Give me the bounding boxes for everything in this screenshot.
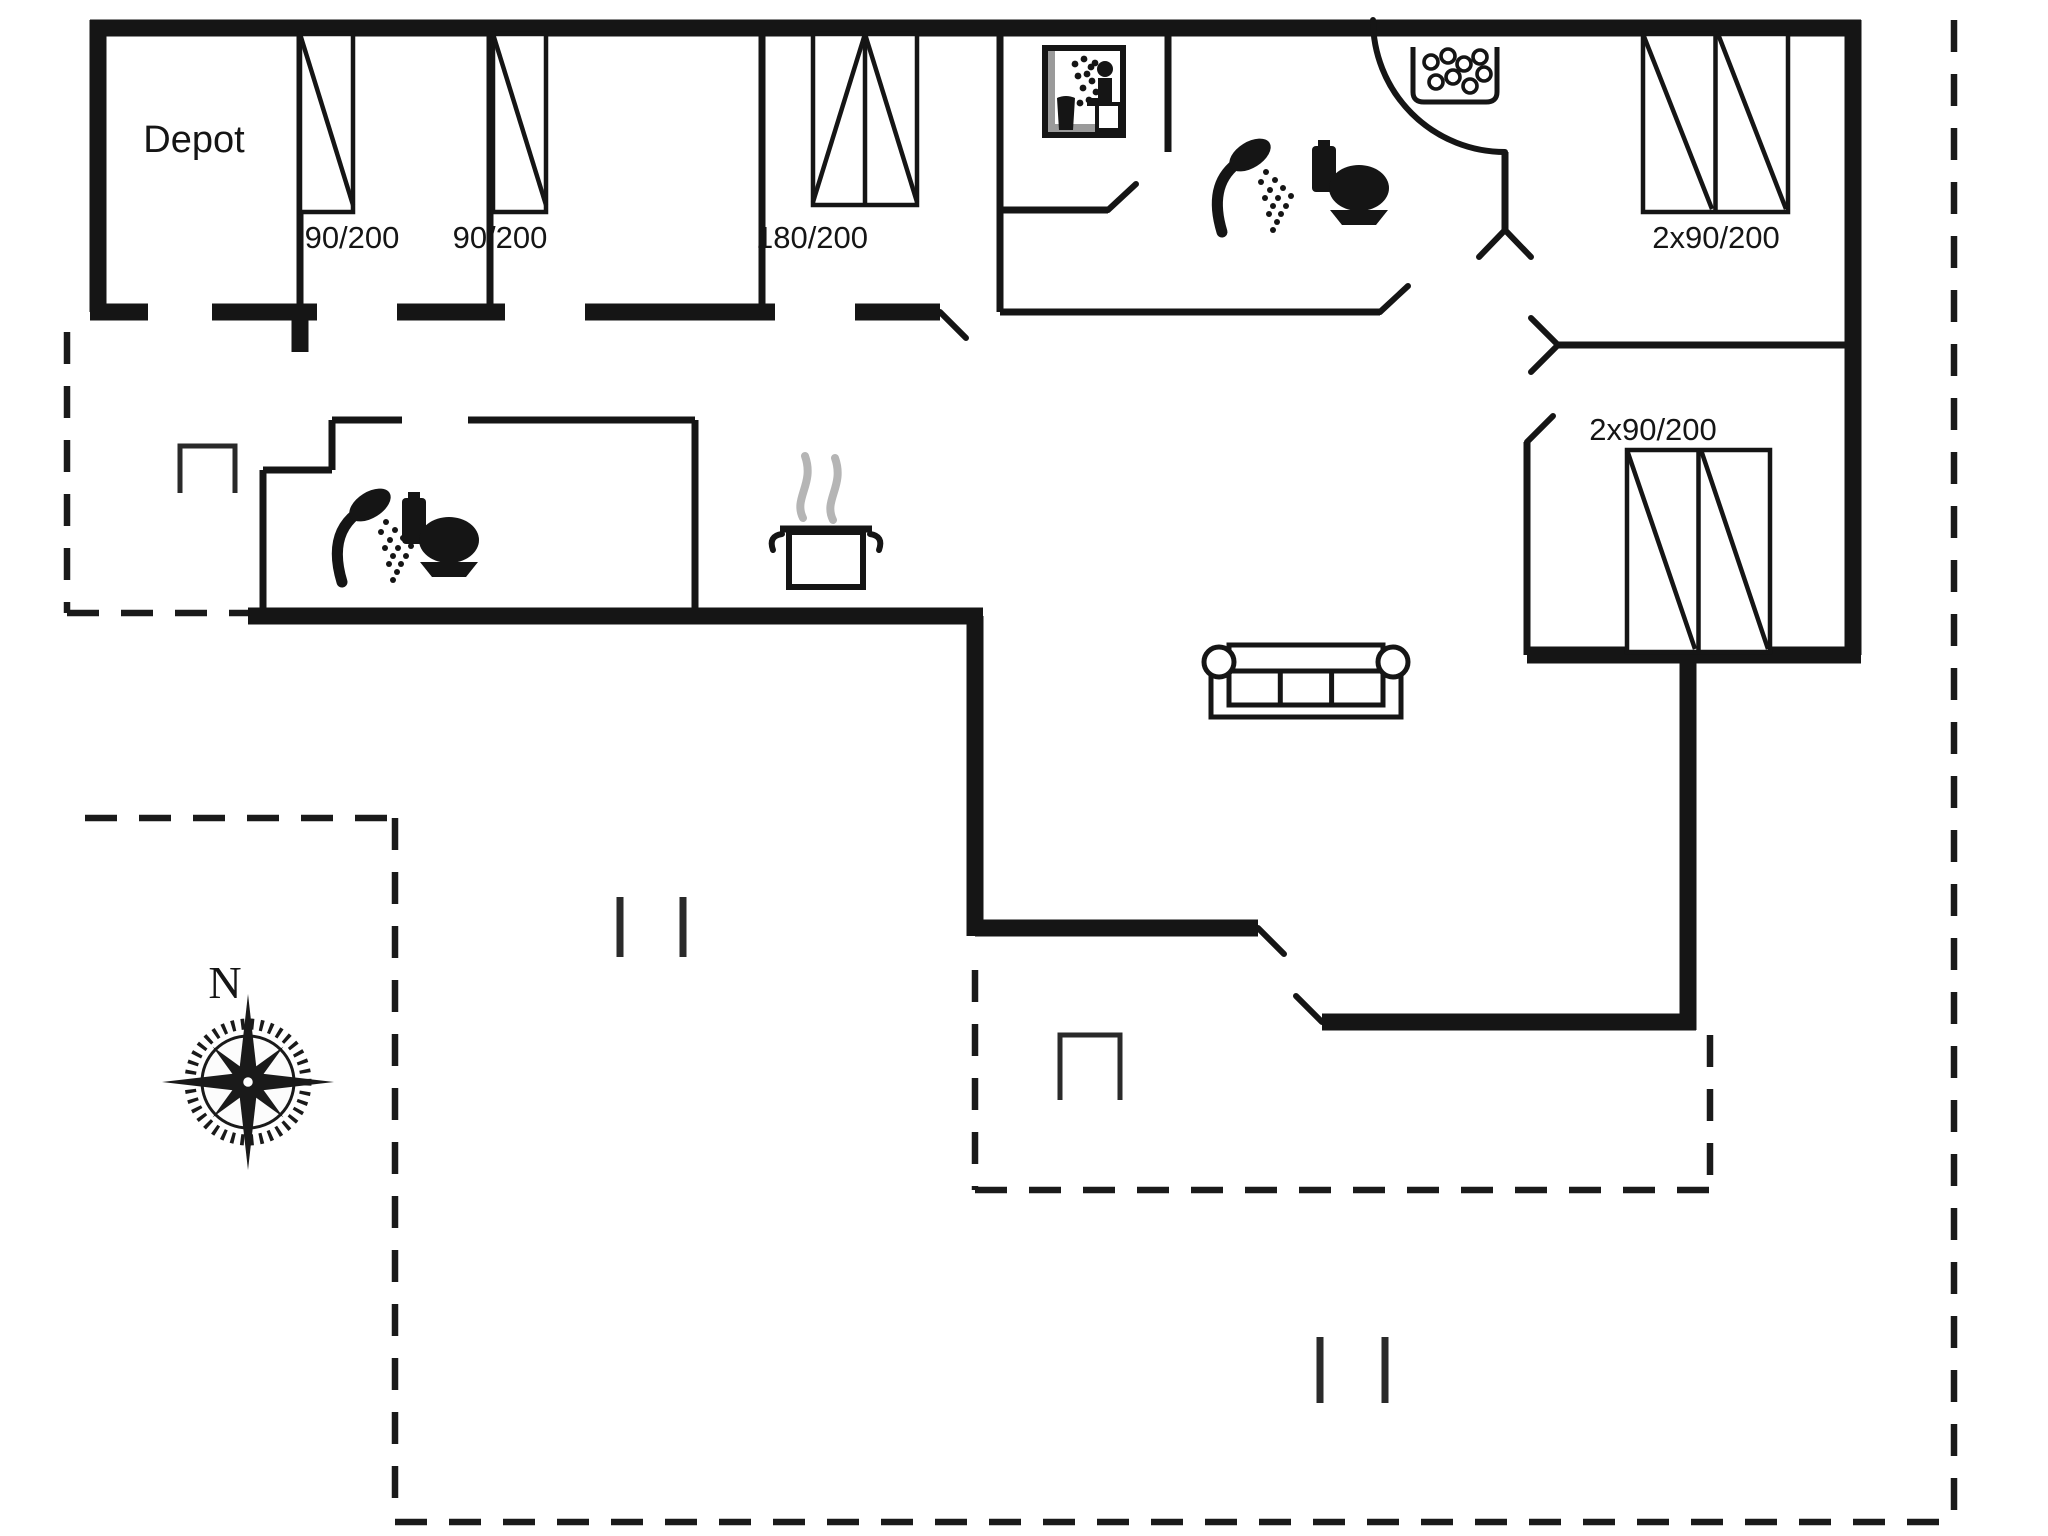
door-leaf-bedroom5 — [1527, 416, 1553, 442]
bed-bedroom1 — [300, 34, 353, 212]
bed-size-label-bedroom1: 90/200 — [305, 220, 400, 255]
bed-size-label-bedroom3: 180/200 — [756, 220, 868, 255]
terrace-step-marks — [620, 897, 1385, 1403]
outer-walls — [90, 20, 1861, 1030]
toilet-icon-bathroom-1 — [1312, 140, 1389, 225]
cooking-pot-icon — [772, 456, 881, 587]
steam-swirl — [830, 458, 837, 520]
compass-rose-icon — [162, 994, 334, 1170]
step-marks-south-terrace — [1320, 1337, 1385, 1403]
floor-plan-page: Depot 90/200 90/200 180/200 2x90/200 2x9… — [0, 0, 2048, 1536]
bed-bedroom5-double — [1627, 450, 1770, 652]
door-leaf-bathroom1 — [1380, 286, 1408, 312]
bed-bedroom3-double — [813, 34, 917, 205]
bed-size-label-bedroom2: 90/200 — [453, 220, 548, 255]
bed-size-label-bedroom5: 2x90/200 — [1589, 412, 1717, 447]
floor-plan-drawing: Depot 90/200 90/200 180/200 2x90/200 2x9… — [0, 0, 2048, 1536]
door-leaf-bathroom1-east — [1479, 230, 1531, 257]
door-leaf-hall — [940, 312, 966, 338]
bed-bedroom4-double — [1643, 34, 1788, 212]
door-leaf-bedroom4 — [1531, 318, 1558, 372]
bed-size-label-bedroom4: 2x90/200 — [1652, 220, 1780, 255]
sauna-bucket — [1057, 96, 1075, 130]
door-symbols — [940, 20, 1558, 1022]
chimney-symbol-left — [180, 446, 235, 493]
door-leaf-terrace — [1258, 928, 1322, 1022]
steam-swirl — [800, 456, 807, 518]
compass-north-label: N — [208, 957, 241, 1008]
chimney-symbol-living — [1060, 1035, 1120, 1100]
shower-icon-bathroom-1 — [1217, 132, 1294, 233]
shower-spray-dots — [1258, 169, 1294, 233]
depot-label: Depot — [143, 119, 245, 161]
whirlpool-icon — [1413, 47, 1497, 102]
toilet-icon-bathroom-2 — [402, 492, 479, 577]
bed-bedroom2 — [493, 34, 546, 212]
sauna-icon — [1045, 48, 1123, 135]
wall-bathroom2-north — [263, 420, 695, 470]
step-marks-west-terrace — [620, 897, 683, 957]
door-leaf-sauna — [1108, 184, 1136, 210]
sofa-icon — [1204, 645, 1408, 717]
